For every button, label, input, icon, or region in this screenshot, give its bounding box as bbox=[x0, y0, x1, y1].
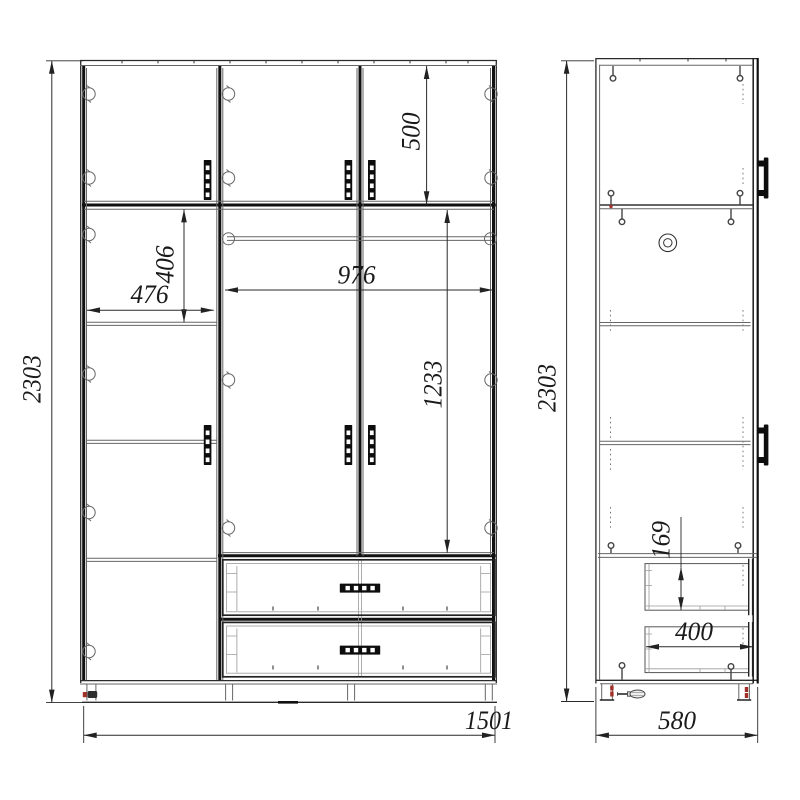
dim-drawer-side-height-label: 169 bbox=[646, 521, 675, 559]
door-handle-icon bbox=[204, 425, 212, 465]
side-door-handle-icon bbox=[758, 425, 769, 466]
dim-front-width-label: 1501 bbox=[465, 706, 513, 735]
dim-drawer-depth-label: 400 bbox=[675, 617, 713, 646]
dim-hanging-width-label: 976 bbox=[338, 261, 376, 290]
leveling-foot bbox=[83, 691, 97, 698]
door-handle-icon bbox=[204, 160, 212, 200]
dim-drawer-depth: 400 bbox=[646, 617, 753, 647]
door-handle-icon bbox=[345, 160, 353, 200]
side-drawer-1-front bbox=[749, 559, 753, 615]
dim-hanging-height: 1233 bbox=[418, 210, 447, 553]
dim-side-height-label: 2303 bbox=[532, 364, 561, 412]
screw-icons bbox=[608, 66, 743, 680]
screw-shafts bbox=[611, 66, 740, 680]
red-mark bbox=[83, 692, 87, 697]
door-handle-icon bbox=[368, 160, 376, 200]
dim-front-height: 2303 bbox=[17, 61, 83, 703]
side-drawer-1 bbox=[645, 564, 749, 611]
side-structure-thin bbox=[598, 65, 757, 700]
dim-left-shelf-label: 406 bbox=[150, 246, 179, 284]
panel-joint-ticks bbox=[122, 61, 468, 64]
dim-top-section-label: 500 bbox=[396, 113, 425, 151]
dimensions: 2303 500 406 476 976 1233 1501 bbox=[17, 61, 757, 743]
side-drawer-2-front bbox=[749, 622, 753, 677]
dim-hanging-width: 976 bbox=[225, 261, 493, 291]
hidden-dotted-lines bbox=[611, 84, 744, 651]
dim-front-width: 1501 bbox=[84, 706, 513, 743]
dim-side-depth: 580 bbox=[596, 687, 758, 743]
side-view bbox=[596, 58, 769, 700]
door-handle-icon bbox=[345, 425, 353, 465]
side-carcass-outline bbox=[596, 58, 759, 684]
dim-top-section-height: 500 bbox=[396, 66, 426, 204]
dim-left-inner-width-label: 476 bbox=[131, 280, 169, 309]
dim-left-inner-width: 476 bbox=[87, 280, 214, 310]
door-handle-icon bbox=[368, 425, 376, 465]
drawer-2-ticks bbox=[273, 666, 447, 670]
wardrobe-technical-drawing: 2303 500 406 476 976 1233 1501 bbox=[0, 0, 800, 800]
drawer-handle-icon bbox=[340, 646, 380, 655]
dim-front-height-label: 2303 bbox=[17, 355, 46, 403]
side-drawer-1-details bbox=[645, 564, 749, 611]
dim-side-height: 2303 bbox=[532, 61, 594, 702]
drawer-1-ticks bbox=[273, 607, 447, 611]
drawer-handle-icon bbox=[340, 584, 380, 593]
screwdriver-icon bbox=[618, 690, 646, 698]
side-door-handle-icon bbox=[758, 158, 769, 199]
dim-hanging-height-label: 1233 bbox=[418, 361, 447, 409]
rod-cross-section bbox=[659, 234, 677, 252]
dim-side-depth-label: 580 bbox=[658, 706, 696, 735]
red-screw-dot bbox=[609, 205, 612, 208]
